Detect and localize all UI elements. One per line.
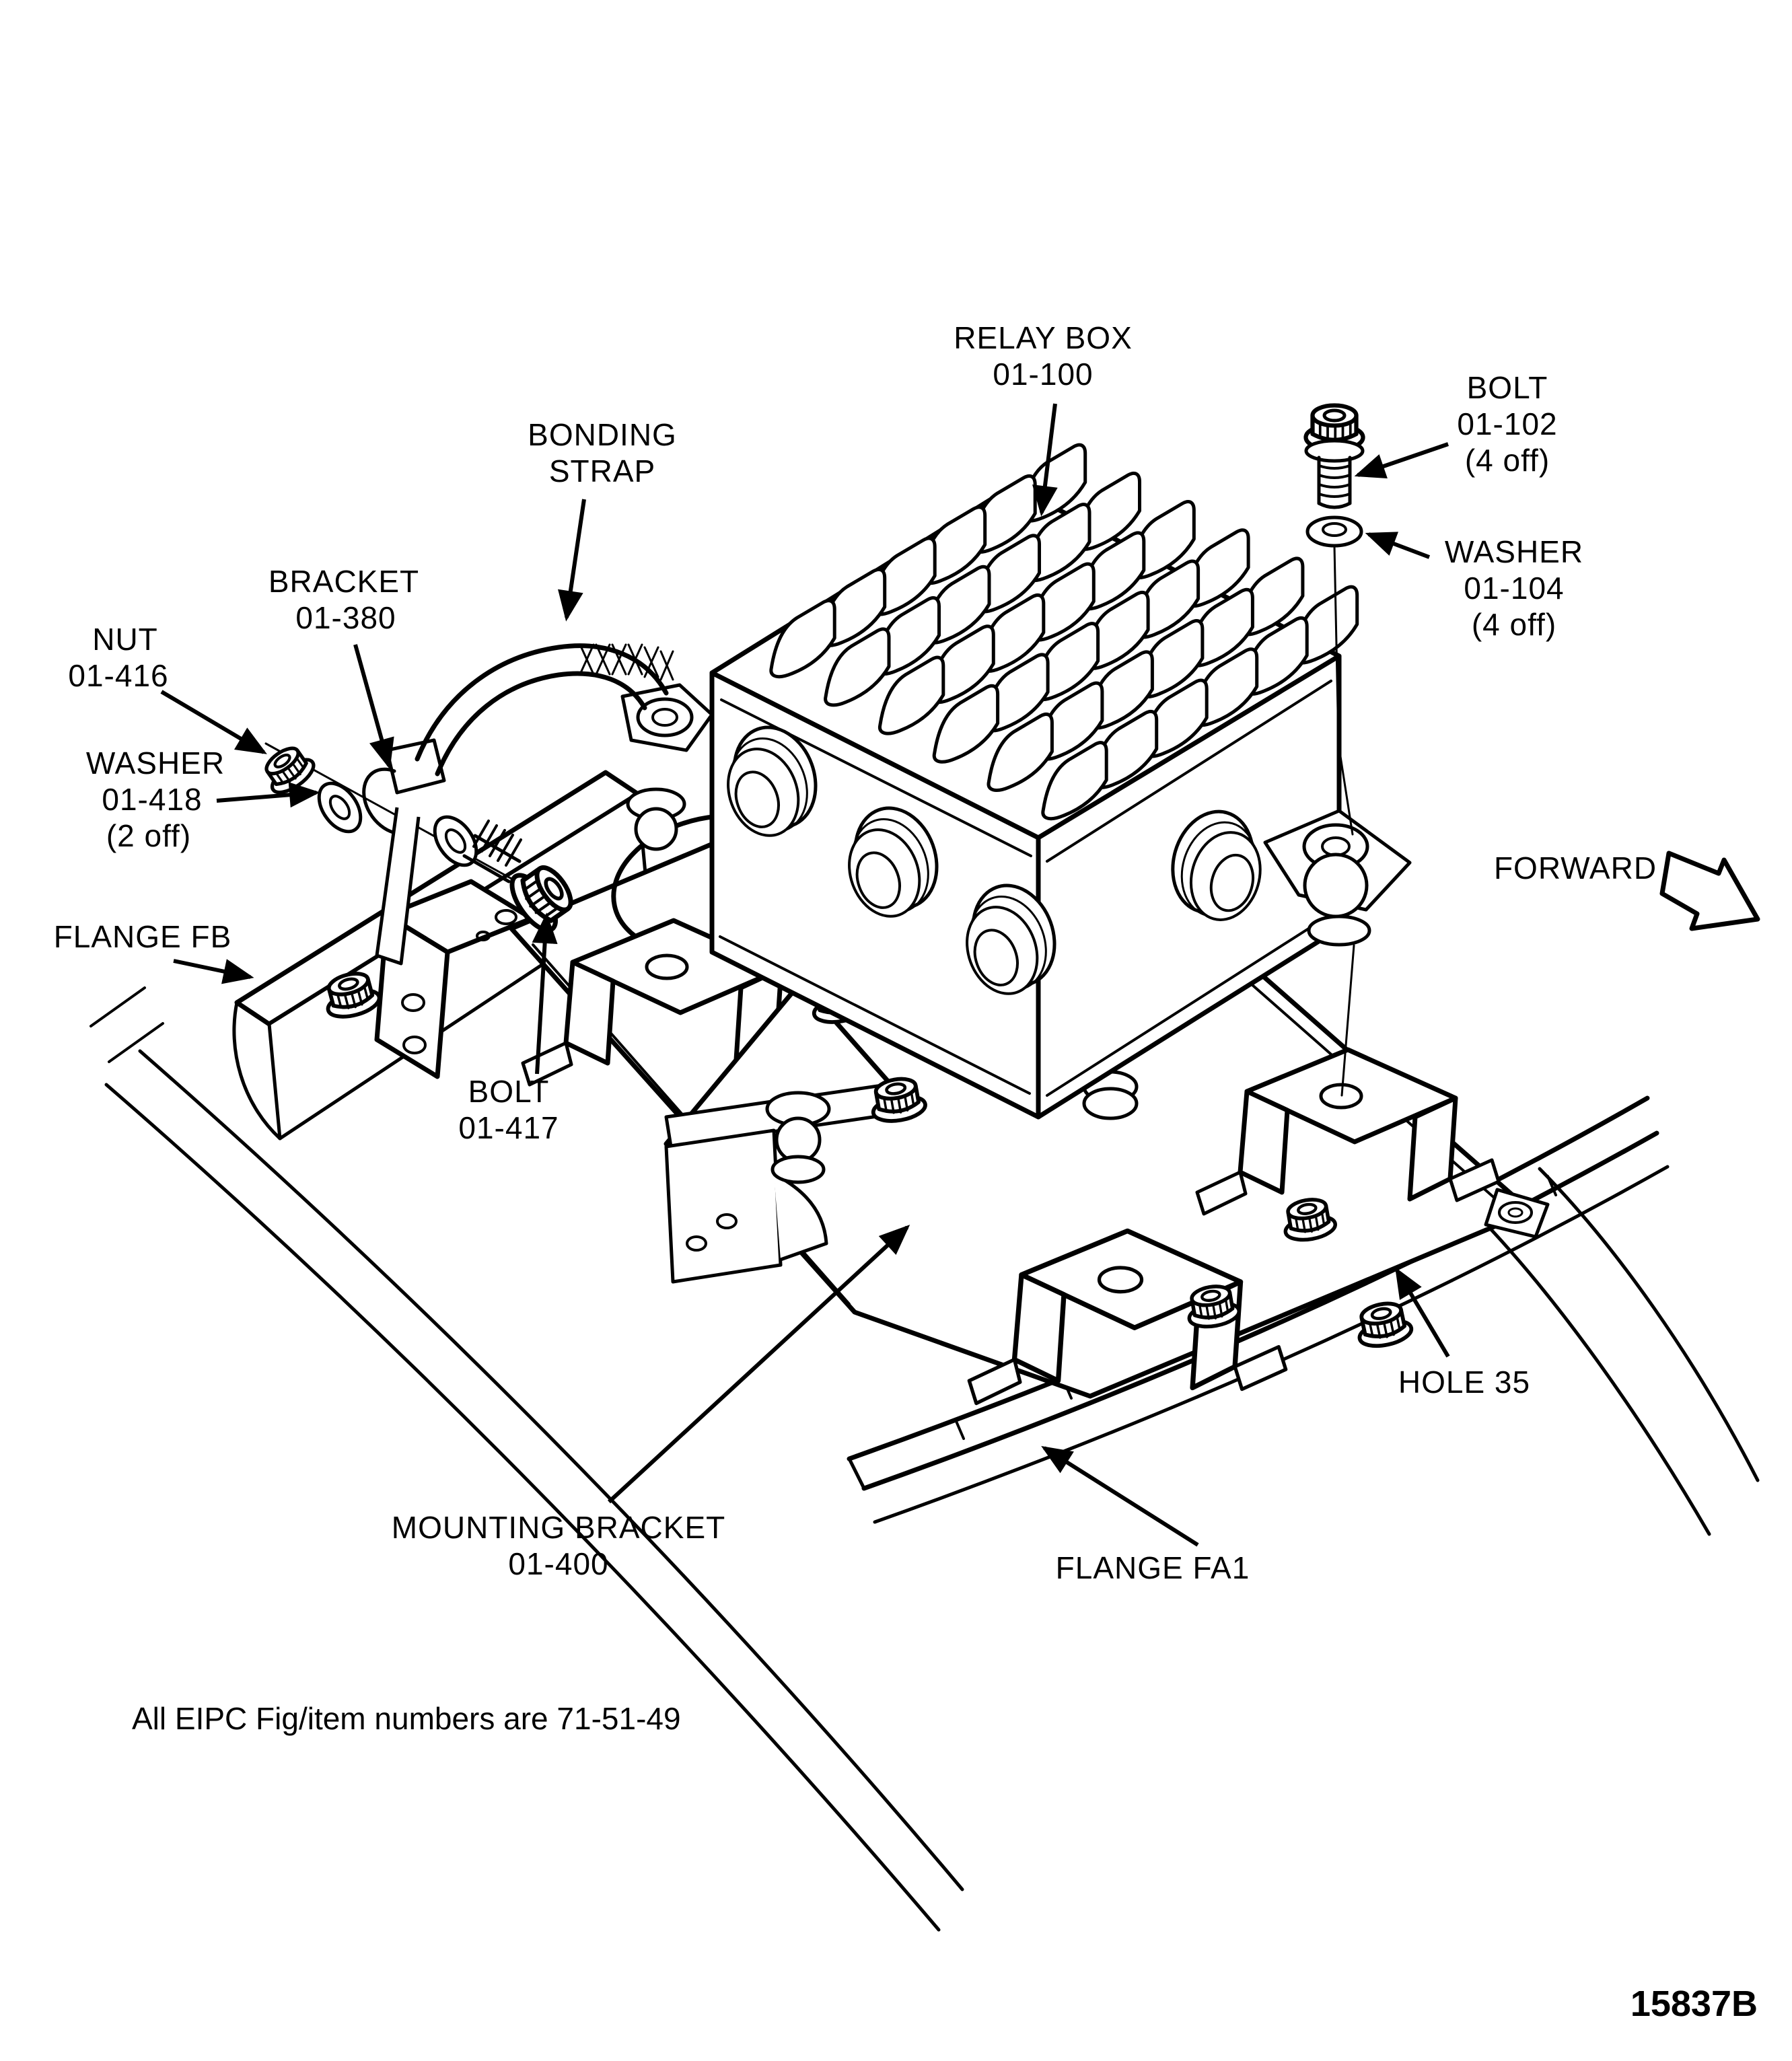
label-bolt-417-line2: 01-417 (458, 1110, 559, 1145)
forward-arrow-icon (1662, 853, 1758, 929)
label-nut-01-416: NUT 01-416 (68, 622, 264, 752)
forward-label: FORWARD (1494, 851, 1657, 885)
label-washer-104-line1: WASHER (1445, 534, 1583, 569)
label-bonding-strap: BONDING STRAP (528, 417, 677, 618)
hole-35-nut (1354, 1299, 1414, 1350)
label-bracket-01-380: BRACKET 01-380 (268, 564, 419, 766)
label-nut-416-line1: NUT (92, 622, 158, 657)
label-bolt-01-102: BOLT 01-102 (4 off) (1358, 370, 1558, 478)
label-washer-104-line3: (4 off) (1472, 607, 1556, 642)
leader-bolt-102 (1358, 444, 1448, 475)
label-washer-01-104: WASHER 01-104 (4 off) (1369, 534, 1583, 642)
label-flange-fb: FLANGE FB (54, 919, 250, 977)
label-bracket-380-line1: BRACKET (268, 564, 419, 599)
label-hole-35-line1: HOLE 35 (1398, 1365, 1530, 1400)
leader-flange-fb (174, 961, 250, 977)
section-hatch (91, 988, 163, 1062)
washer-01-104-part (1307, 517, 1361, 546)
label-washer-418-line1: WASHER (86, 746, 225, 781)
exploded-view-diagram: RELAY BOX 01-100 BOLT 01-102 (4 off) WAS… (0, 0, 1792, 2061)
label-mounting-bracket-line2: 01-400 (508, 1546, 608, 1581)
relay-box-left-ear (622, 685, 712, 849)
leader-bracket-380 (355, 645, 389, 766)
label-relay-box-line1: RELAY BOX (954, 320, 1133, 355)
label-hole-35: HOLE 35 (1397, 1270, 1530, 1400)
label-flange-fa1-line1: FLANGE FA1 (1056, 1550, 1250, 1585)
label-washer-418-line3: (2 off) (106, 818, 191, 853)
eipc-note: All EIPC Fig/item numbers are 71-51-49 (132, 1701, 681, 1736)
label-bolt-102-line1: BOLT (1467, 370, 1548, 405)
label-flange-fa1: FLANGE FA1 (1044, 1448, 1250, 1585)
leader-hole-35 (1397, 1270, 1448, 1357)
strap-braid-hatch (580, 645, 673, 680)
bolt-01-102-part (1306, 406, 1363, 508)
leader-washer-104 (1369, 534, 1429, 557)
label-bracket-380-line2: 01-380 (295, 600, 396, 635)
leader-washer-418 (217, 793, 316, 801)
nut-01-416-part (258, 740, 318, 799)
leader-nut-416 (162, 692, 264, 752)
label-bolt-102-line3: (4 off) (1465, 443, 1550, 478)
label-bonding-strap-line2: STRAP (549, 454, 655, 489)
leader-flange-fa1 (1044, 1448, 1198, 1545)
manual-page: RELAY BOX 01-100 BOLT 01-102 (4 off) WAS… (0, 0, 1792, 2061)
label-washer-104-line2: 01-104 (1464, 571, 1564, 606)
forward-direction: FORWARD (1494, 851, 1758, 929)
plate-tab-hole (1499, 1202, 1532, 1223)
label-relay-box-line2: 01-100 (993, 357, 1093, 392)
label-flange-fb-line1: FLANGE FB (54, 919, 232, 954)
label-bolt-417-line1: BOLT (468, 1074, 550, 1109)
strap-terminal-lug (387, 740, 444, 793)
washer-01-418-part-1 (311, 776, 369, 839)
label-bolt-102-line2: 01-102 (1457, 406, 1557, 441)
leader-bonding-strap (567, 499, 584, 618)
label-mounting-bracket-line1: MOUNTING BRACKET (392, 1510, 725, 1545)
label-nut-416-line2: 01-416 (68, 658, 168, 693)
relay-box-front-foot (767, 1093, 829, 1182)
figure-id: 15837B (1630, 1984, 1758, 2024)
label-washer-418-line2: 01-418 (102, 782, 202, 817)
label-bonding-strap-line1: BONDING (528, 417, 677, 452)
